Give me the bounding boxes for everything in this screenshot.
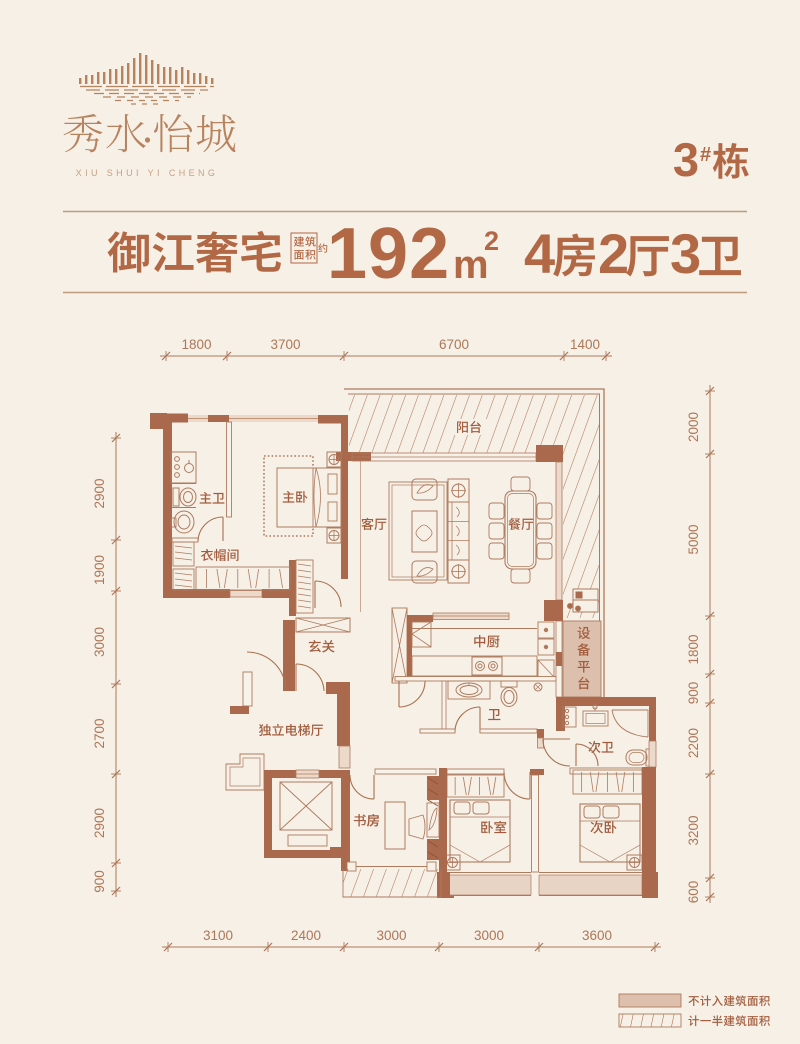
svg-text:1800: 1800 (686, 634, 701, 664)
svg-text:1900: 1900 (92, 555, 107, 585)
svg-text:1400: 1400 (570, 337, 600, 352)
svg-text:2: 2 (598, 222, 629, 285)
svg-text:2400: 2400 (291, 928, 321, 943)
svg-text:192: 192 (327, 214, 450, 294)
svg-text:2900: 2900 (92, 478, 107, 508)
svg-text:2900: 2900 (92, 808, 107, 838)
svg-text:1800: 1800 (181, 337, 211, 352)
svg-text:3000: 3000 (376, 928, 406, 943)
svg-text:3200: 3200 (686, 815, 701, 845)
svg-text:3100: 3100 (203, 928, 233, 943)
svg-text:600: 600 (686, 881, 701, 904)
svg-text:2000: 2000 (686, 412, 701, 442)
svg-text:5000: 5000 (686, 524, 701, 554)
svg-text:2200: 2200 (686, 728, 701, 758)
svg-text:3700: 3700 (270, 337, 300, 352)
svg-text:900: 900 (686, 682, 701, 705)
svg-text:2700: 2700 (92, 718, 107, 748)
svg-text:3000: 3000 (92, 627, 107, 657)
svg-text:XIU SHUI YI CHENG: XIU SHUI YI CHENG (76, 168, 219, 178)
svg-text:3000: 3000 (474, 928, 504, 943)
svg-text:3: 3 (673, 133, 699, 186)
svg-text:4: 4 (524, 222, 555, 285)
svg-text:900: 900 (92, 870, 107, 893)
svg-text:2: 2 (484, 226, 499, 256)
svg-text:3: 3 (670, 222, 701, 285)
svg-text:3600: 3600 (582, 928, 612, 943)
svg-text:6700: 6700 (439, 337, 469, 352)
svg-text:#: # (700, 144, 711, 166)
